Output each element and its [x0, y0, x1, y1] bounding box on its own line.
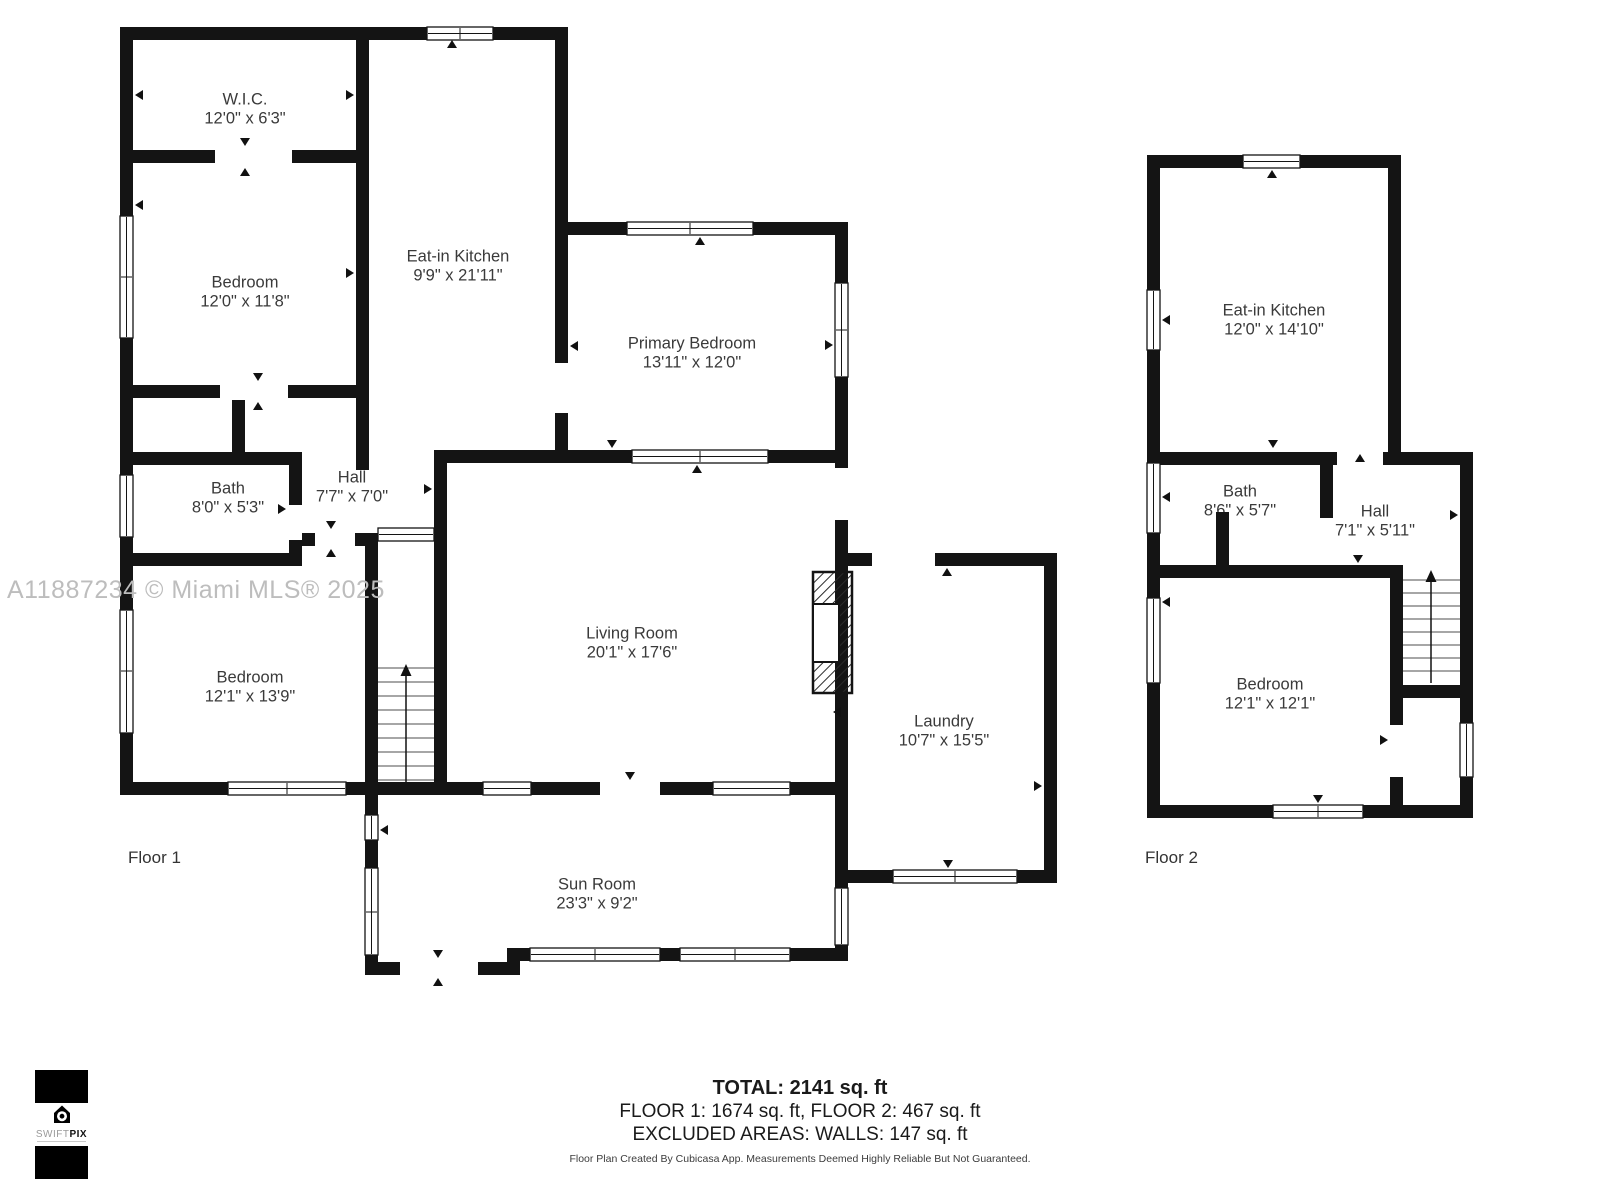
floor2-label: Floor 2	[1145, 848, 1198, 868]
summary-excluded: EXCLUDED AREAS: WALLS: 147 sq. ft	[0, 1123, 1600, 1146]
summary-floors: FLOOR 1: 1674 sq. ft, FLOOR 2: 467 sq. f…	[0, 1100, 1600, 1123]
house-camera-icon	[51, 1104, 73, 1124]
floor1-label: Floor 1	[128, 848, 181, 868]
logo-bottom-block	[35, 1146, 88, 1179]
swiftpix-logo: SWIFTPIX	[35, 1070, 88, 1179]
disclaimer-text: Floor Plan Created By Cubicasa App. Meas…	[0, 1153, 1600, 1165]
logo-rule	[37, 1141, 86, 1142]
logo-brand-bold: PIX	[69, 1129, 87, 1140]
logo-wordmark: SWIFTPIX	[35, 1129, 88, 1140]
summary-total: TOTAL: 2141 sq. ft	[0, 1077, 1600, 1100]
logo-brand-light: SWIFT	[36, 1129, 70, 1140]
area-summary: TOTAL: 2141 sq. ft FLOOR 1: 1674 sq. ft,…	[0, 1077, 1600, 1146]
logo-top-block	[35, 1070, 88, 1103]
mls-watermark: A11887234 © Miami MLS® 2025	[7, 576, 385, 605]
